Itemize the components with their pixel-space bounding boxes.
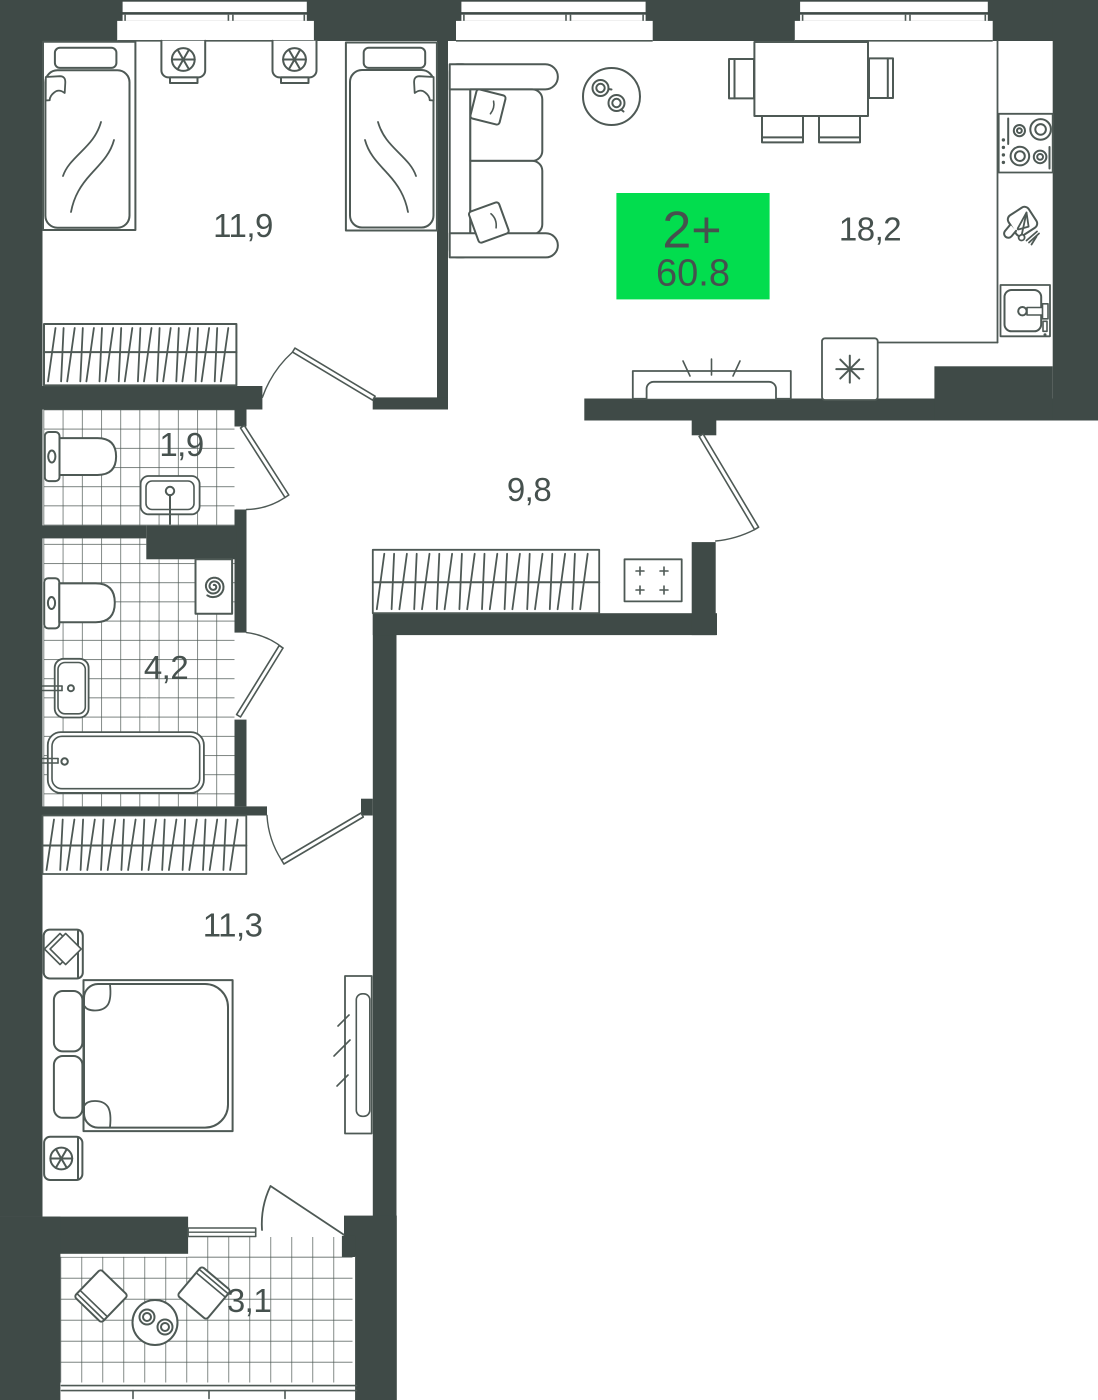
- svg-text:4,2: 4,2: [144, 649, 188, 686]
- svg-text:2+: 2+: [662, 202, 721, 260]
- svg-text:60.8: 60.8: [656, 253, 730, 295]
- svg-text:9,8: 9,8: [507, 471, 551, 508]
- svg-text:11,9: 11,9: [213, 207, 273, 244]
- svg-text:11,3: 11,3: [203, 907, 263, 944]
- svg-text:1,9: 1,9: [159, 426, 203, 463]
- svg-text:3,1: 3,1: [227, 1282, 271, 1319]
- svg-text:18,2: 18,2: [839, 211, 901, 248]
